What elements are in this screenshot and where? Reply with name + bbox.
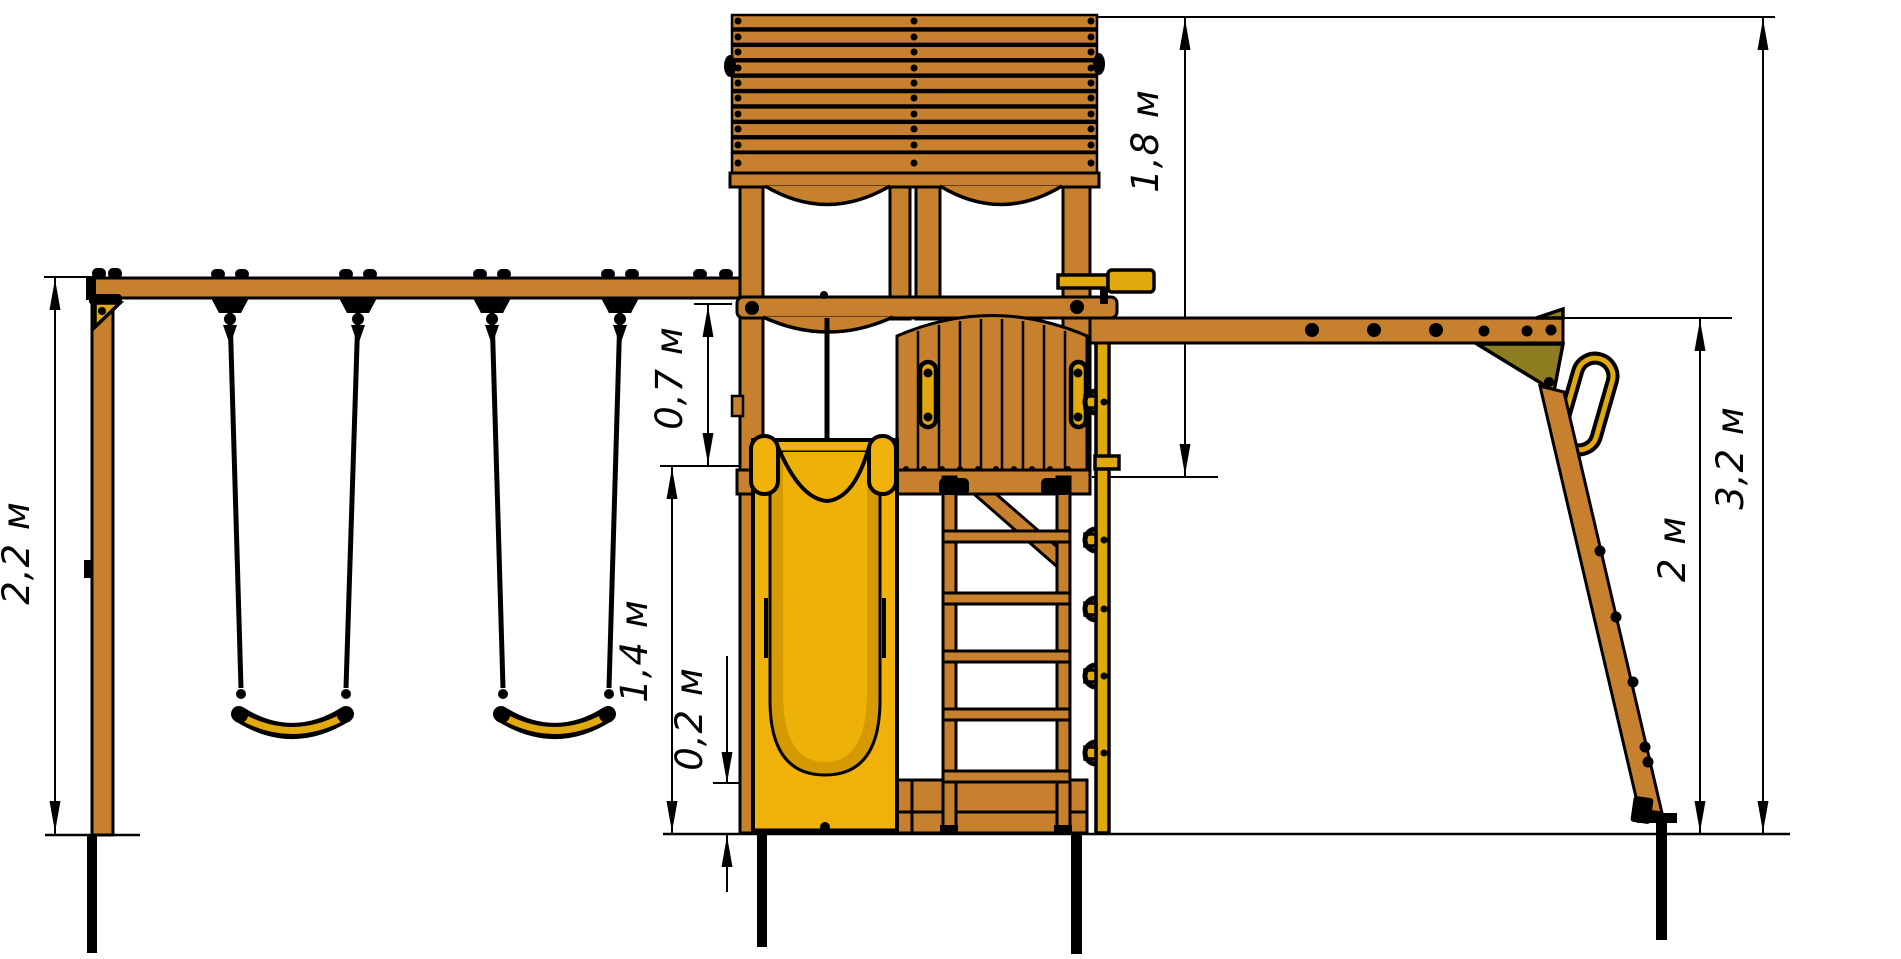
swing-seat bbox=[232, 707, 353, 731]
swing-post bbox=[92, 300, 113, 835]
ladder-rung bbox=[943, 531, 1070, 542]
tower-roof bbox=[724, 15, 1105, 174]
swing-seat bbox=[494, 707, 615, 731]
playground-structure-diagram: 2,2 м 0,7 м 1,4 м 0,2 м 1,8 м 2 м 3,2 м bbox=[0, 0, 1901, 959]
access-ladder bbox=[939, 477, 1072, 835]
ground-line bbox=[45, 834, 1790, 835]
monkey-bar-beam bbox=[1090, 318, 1563, 343]
dim-monkey-bar-height: 2 м bbox=[1651, 516, 1694, 582]
dim-roof-to-deck: 1,8 м bbox=[1124, 89, 1167, 193]
tower-door-panel bbox=[897, 316, 1087, 474]
tower-left-anchor bbox=[757, 834, 767, 947]
dim-total-height: 3,2 м bbox=[1709, 406, 1752, 510]
dim-slide-section: 1,4 м bbox=[613, 599, 656, 703]
dim-beam-to-deck: 0,7 м bbox=[648, 326, 691, 430]
tower-right-anchor bbox=[1071, 834, 1082, 954]
climbing-pole bbox=[1085, 340, 1119, 833]
ladder-rung bbox=[943, 651, 1070, 662]
swing-beam bbox=[90, 278, 745, 298]
swing-post-anchor bbox=[87, 835, 97, 953]
swing-chains bbox=[230, 313, 620, 699]
ladder-rung bbox=[943, 593, 1070, 604]
tube-slide bbox=[751, 436, 897, 833]
swing-hangers bbox=[211, 298, 639, 345]
dim-swing-beam-height: 2,2 м bbox=[0, 501, 38, 605]
ladder-rung bbox=[943, 771, 1070, 782]
monkey-bars bbox=[1090, 309, 1677, 940]
diagram-canvas: 2,2 м 0,7 м 1,4 м 0,2 м 1,8 м 2 м 3,2 м bbox=[0, 0, 1901, 959]
slide-entry-rim bbox=[751, 436, 778, 494]
dim-slide-exit: 0,2 м bbox=[668, 667, 711, 771]
ladder-rung bbox=[943, 709, 1070, 720]
leg-anchor bbox=[1656, 820, 1667, 940]
slide-entry-rim bbox=[869, 436, 896, 494]
